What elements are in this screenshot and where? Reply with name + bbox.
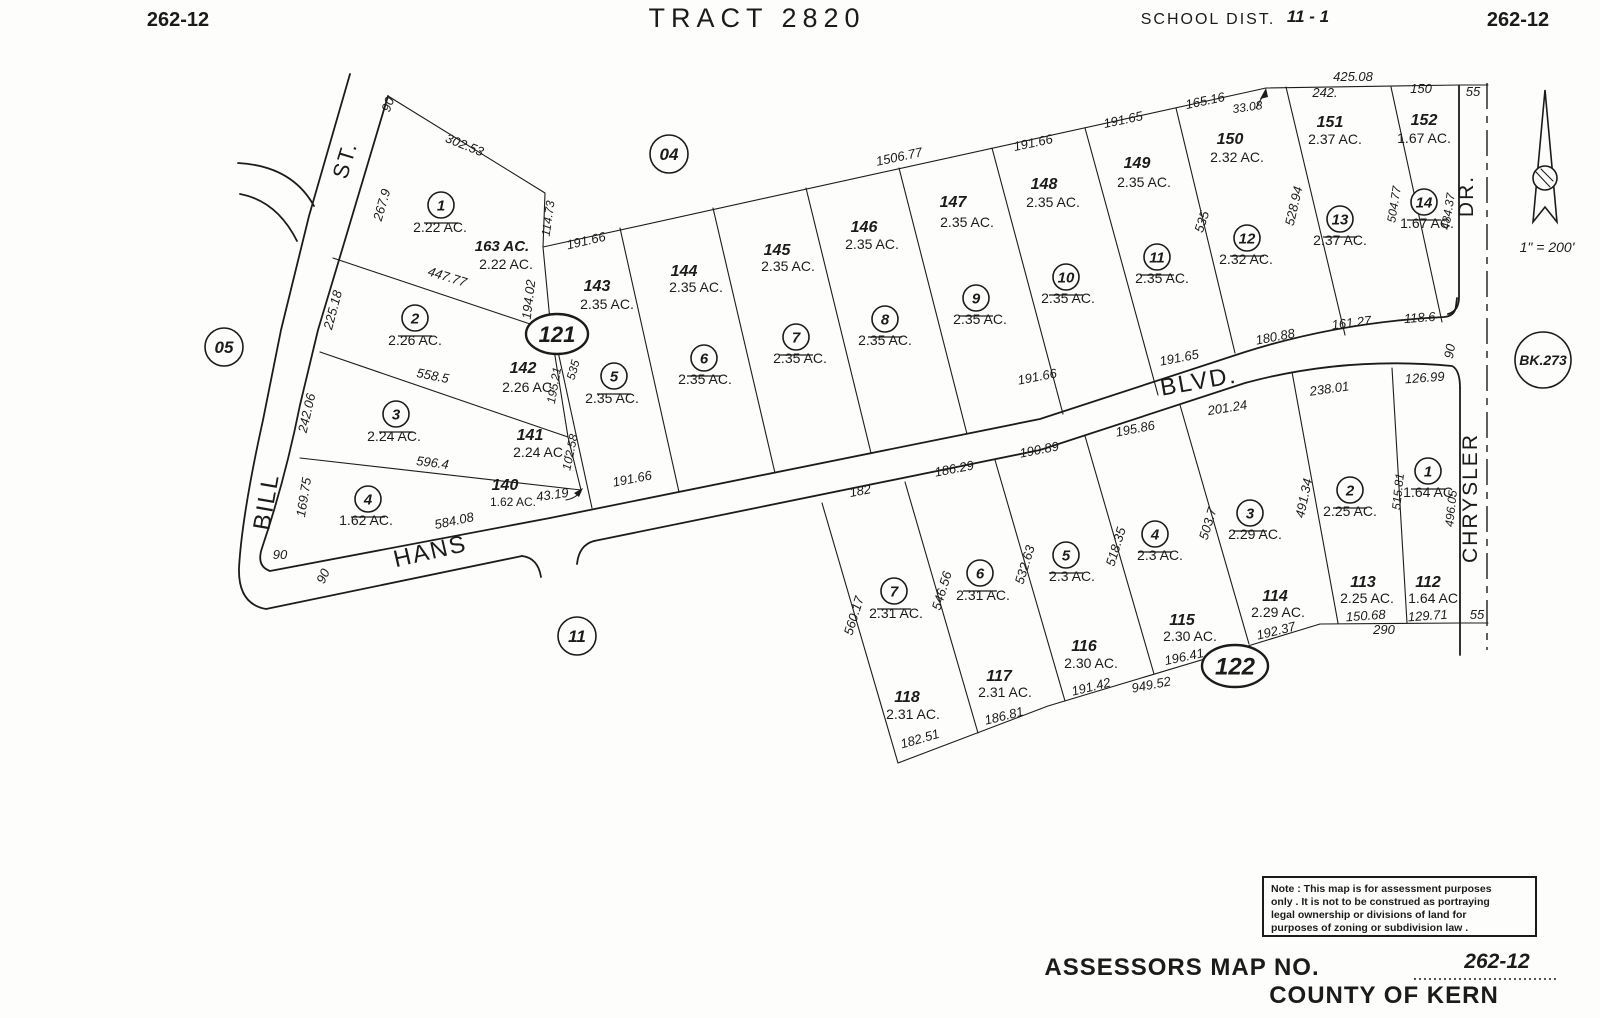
lot-area-label: 1.64 AC. bbox=[1403, 484, 1457, 500]
dimension-label: 90 bbox=[1441, 342, 1458, 360]
lot-number-label: 116 bbox=[1071, 638, 1097, 655]
lot-area-label: 2.35 AC. bbox=[953, 311, 1007, 327]
dimension-label: 186.81 bbox=[983, 704, 1025, 728]
dimension-label: 491.34 bbox=[1292, 477, 1315, 519]
note-line: only . It is not to be construed as port… bbox=[1271, 896, 1490, 908]
page-title: TRACT 2820 bbox=[648, 3, 865, 33]
dimension-label: 535 bbox=[564, 358, 583, 381]
circled-number-label: 6 bbox=[976, 565, 985, 582]
circled-number-label: 4 bbox=[363, 491, 373, 508]
lot-number-label: 114 bbox=[1262, 588, 1288, 605]
lot-area-label: 1.62 AC. bbox=[339, 512, 393, 528]
circled-number-label: 3 bbox=[392, 406, 401, 423]
north-arrow-shape bbox=[1533, 90, 1557, 222]
dimension-label: 596.4 bbox=[415, 453, 449, 472]
sheet-number-left: 262-12 bbox=[147, 9, 209, 31]
street-name-label: BILL bbox=[248, 471, 285, 532]
circled-number-label: 10 bbox=[1058, 269, 1075, 286]
dimension-label: 55 bbox=[1466, 84, 1481, 99]
dimension-label: 201.24 bbox=[1205, 397, 1248, 418]
dimension-label: 191.66 bbox=[565, 229, 608, 253]
lot-area-label: 2.35 AC. bbox=[585, 390, 639, 406]
circled-number-label: 7 bbox=[792, 329, 801, 346]
circled-number-label: 9 bbox=[972, 290, 981, 307]
note-line: Note : This map is for assessment purpos… bbox=[1271, 883, 1492, 895]
dimension-label: 503.7 bbox=[1196, 505, 1220, 541]
street-name-label: DR. bbox=[1455, 175, 1478, 217]
lot-area-label: 2.31 AC. bbox=[956, 587, 1010, 603]
lot-area-label: 2.35 AC. bbox=[858, 332, 912, 348]
dimension-label: 165.16 bbox=[1184, 89, 1227, 112]
lot-area-label: 2.31 AC. bbox=[886, 706, 940, 722]
lot-area-label: 2.24 AC. bbox=[367, 428, 421, 444]
dimension-label: 584.08 bbox=[433, 509, 476, 532]
circled-number-label: 13 bbox=[1332, 211, 1349, 228]
dimension-label: 191.65 bbox=[1158, 346, 1201, 368]
lot-area-label: 2.35 AC. bbox=[773, 350, 827, 366]
north-arrow-circle bbox=[1533, 166, 1557, 190]
dimension-label: 447.77 bbox=[426, 264, 469, 290]
note-line: legal ownership or divisions of land for bbox=[1271, 909, 1466, 921]
lot-number-label: 141 bbox=[517, 427, 544, 444]
circled-number-label: 11 bbox=[1149, 249, 1165, 266]
dimension-label: 535 bbox=[1191, 208, 1212, 234]
circled-number-label: 11 bbox=[568, 627, 586, 646]
dimension-label: 186.29 bbox=[933, 457, 975, 479]
lot-number-label: 148 bbox=[1031, 176, 1058, 193]
lot-area-label: 2.3 AC. bbox=[1049, 568, 1095, 584]
circled-number-label: 04 bbox=[660, 145, 679, 164]
lot-number-label: 144 bbox=[671, 263, 698, 280]
lot-number-label: 150 bbox=[1217, 131, 1244, 148]
lot-number-label: 146 bbox=[851, 219, 878, 236]
dimension-label: 560.17 bbox=[841, 594, 867, 637]
dimension-label: 302.53 bbox=[443, 130, 486, 159]
dimension-label: 55 bbox=[1470, 607, 1485, 622]
dimension-label: 425.08 bbox=[1333, 69, 1374, 84]
lot-area-label: 2.29 AC. bbox=[1228, 526, 1282, 542]
lot-number-label: 145 bbox=[764, 242, 792, 259]
dimension-label: 129.71 bbox=[1407, 607, 1448, 625]
lot-number-label: 118 bbox=[894, 689, 920, 706]
circled-number-label: 121 bbox=[539, 322, 576, 347]
lot-number-label: 143 bbox=[584, 278, 611, 295]
circled-number-label: BK.273 bbox=[1519, 352, 1567, 368]
assessors-map-number: 262-12 bbox=[1463, 950, 1530, 973]
lot-number-label: 117 bbox=[986, 668, 1013, 685]
lot-area-label: 1.62 AC. bbox=[490, 495, 536, 509]
dimension-label: 242. bbox=[1311, 85, 1337, 100]
scale-label: 1" = 200' bbox=[1520, 239, 1576, 255]
dimension-label: 182 bbox=[848, 481, 873, 500]
lot-area-label: 2.35 AC. bbox=[1026, 194, 1080, 210]
circled-number-label: 2 bbox=[410, 310, 420, 327]
circled-number-label: 3 bbox=[1246, 505, 1255, 522]
parcel-map-canvas: 1" = 200' BILLST.HANSBLVD.DR.CHRYSLER903… bbox=[0, 0, 1600, 1018]
dimension-label: 90 bbox=[378, 94, 397, 113]
dimension-label: 90 bbox=[273, 547, 288, 562]
dimension-label: 126.99 bbox=[1404, 369, 1445, 387]
lot-area-label: 2.35 AC. bbox=[1041, 290, 1095, 306]
circled-number-label: 1 bbox=[1424, 463, 1432, 480]
assessors-map-label: ASSESSORS MAP NO. bbox=[1044, 954, 1319, 981]
dimension-label: 191.66 bbox=[1016, 365, 1059, 387]
county-label: COUNTY OF KERN bbox=[1269, 982, 1499, 1009]
circled-number-label: 7 bbox=[890, 583, 899, 600]
dimension-label: 558.5 bbox=[415, 365, 451, 386]
dimension-label: 191.66 bbox=[611, 467, 654, 489]
dimension-label: 528.94 bbox=[1282, 185, 1306, 227]
lot-area-label: 2.25 AC. bbox=[1323, 503, 1377, 519]
dimension-label: 161.27 bbox=[1331, 313, 1373, 333]
circled-number-label: 2 bbox=[1345, 482, 1355, 499]
lot-area-label: 2.29 AC. bbox=[1251, 604, 1305, 620]
street-name-label: HANS bbox=[391, 530, 470, 573]
north-arrow: 1" = 200' bbox=[1520, 90, 1576, 255]
lot-area-label: 2.35 AC. bbox=[669, 279, 723, 295]
lot-number-label: 147 bbox=[940, 194, 968, 211]
lot-area-label: 2.22 AC. bbox=[479, 256, 533, 272]
circled-number-label: 12 bbox=[1239, 230, 1256, 247]
dimension-label: 180.88 bbox=[1254, 325, 1297, 347]
lot-area-label: 2.31 AC. bbox=[869, 605, 923, 621]
lot-number-label: 151 bbox=[1317, 114, 1344, 131]
lot-area-label: 2.22 AC. bbox=[413, 219, 467, 235]
school-district-label: SCHOOL DIST. bbox=[1141, 11, 1276, 28]
dimension-label: 194.02 bbox=[519, 278, 539, 320]
dimension-label: 191.66 bbox=[1012, 131, 1055, 154]
circled-number-label: 14 bbox=[1416, 194, 1433, 211]
dimension-label: 150 bbox=[1410, 81, 1432, 96]
lot-area-label: 2.3 AC. bbox=[1137, 547, 1183, 563]
map-header: 262-12 TRACT 2820 SCHOOL DIST. 11 - 1 26… bbox=[147, 3, 1549, 33]
dimension-label: 238.01 bbox=[1308, 378, 1350, 399]
street-name-label: BLVD. bbox=[1158, 362, 1239, 402]
dimension-label: 532.63 bbox=[1012, 543, 1038, 586]
lot-area-label: 2.30 AC. bbox=[1064, 655, 1118, 671]
dimension-label: 33.08 bbox=[1232, 98, 1264, 116]
dimension-label: 90 bbox=[313, 566, 333, 586]
circled-number-label: 6 bbox=[700, 350, 709, 367]
dimension-label: 191.65 bbox=[1102, 108, 1145, 131]
map-footer: Note : This map is for assessment purpos… bbox=[1044, 877, 1556, 1009]
lot-area-label: 1.64 AC. bbox=[1408, 590, 1462, 606]
dimension-label: 191.42 bbox=[1070, 674, 1113, 698]
lot-number-label: 112 bbox=[1415, 574, 1441, 591]
dimension-label: 518.35 bbox=[1103, 525, 1129, 568]
lot-area-label: 2.25 AC. bbox=[1340, 590, 1394, 606]
road-network bbox=[238, 74, 1487, 655]
circled-number-label: 8 bbox=[881, 311, 890, 328]
assessor-map-page: 1" = 200' BILLST.HANSBLVD.DR.CHRYSLER903… bbox=[0, 0, 1600, 1018]
circled-number-label: 05 bbox=[215, 338, 234, 357]
lot-number-label: 163 AC. bbox=[475, 238, 529, 255]
lot-area-label: 1.67 AC. bbox=[1397, 130, 1451, 146]
lot-number-label: 142 bbox=[510, 360, 537, 377]
lot-area-label: 2.37 AC. bbox=[1313, 232, 1367, 248]
circled-number-label: 5 bbox=[1062, 547, 1071, 564]
dimension-label: 242.06 bbox=[295, 391, 319, 435]
south-stub-curb-returns bbox=[522, 541, 594, 577]
dimension-label: 118.6 bbox=[1403, 309, 1436, 326]
lot-area-label: 2.35 AC. bbox=[940, 214, 994, 230]
street-name-label: ST. bbox=[327, 138, 362, 181]
lot-area-label: 2.35 AC. bbox=[678, 371, 732, 387]
sheet-number-right: 262-12 bbox=[1487, 9, 1549, 31]
dimension-label: 190.89 bbox=[1018, 438, 1060, 460]
circled-number-label: 122 bbox=[1215, 654, 1256, 681]
parcel-boundaries bbox=[300, 85, 1488, 763]
circled-number-label: 5 bbox=[610, 368, 619, 385]
dimension-label: 114.73 bbox=[539, 199, 558, 237]
dimension-label: 192.37 bbox=[1255, 618, 1298, 642]
lot-area-label: 2.32 AC. bbox=[1210, 149, 1264, 165]
lot-area-label: 2.26 AC. bbox=[388, 332, 442, 348]
lot-number-label: 115 bbox=[1169, 612, 1196, 629]
note-line: purposes of zoning or subdivision law . bbox=[1271, 922, 1468, 934]
lot-area-label: 2.31 AC. bbox=[978, 684, 1032, 700]
side-street-curb-returns bbox=[238, 163, 314, 241]
lot-number-label: 113 bbox=[1350, 574, 1376, 591]
lot-area-label: 2.35 AC. bbox=[845, 236, 899, 252]
dimension-label: 267.9 bbox=[370, 187, 394, 223]
circled-number-label: 1 bbox=[437, 197, 445, 214]
dimension-label: 169.75 bbox=[293, 476, 314, 518]
lot-area-label: 2.35 AC. bbox=[580, 296, 634, 312]
lot-area-label: 2.26 AC. bbox=[502, 379, 556, 395]
street-name-label: CHRYSLER bbox=[1459, 433, 1482, 563]
lot-area-label: 2.37 AC. bbox=[1308, 131, 1362, 147]
lot-area-label: 2.35 AC. bbox=[761, 258, 815, 274]
lot-area-label: 2.24 AC. bbox=[513, 444, 567, 460]
lot-area-label: 2.35 AC. bbox=[1117, 174, 1171, 190]
lot-area-label: 1.67 AC. bbox=[1400, 215, 1454, 231]
school-district-value: 11 - 1 bbox=[1287, 7, 1329, 26]
lot-area-label: 2.30 AC. bbox=[1163, 628, 1217, 644]
lot-number-label: 149 bbox=[1124, 155, 1151, 172]
dimension-label: 949.52 bbox=[1130, 673, 1173, 695]
dimension-label: 182.51 bbox=[899, 726, 941, 751]
lot-area-label: 2.32 AC. bbox=[1219, 251, 1273, 267]
dimension-label: 43.19 bbox=[535, 485, 569, 504]
lot-area-label: 2.35 AC. bbox=[1135, 270, 1189, 286]
circled-number-label: 4 bbox=[1150, 526, 1160, 543]
dimension-label: 290 bbox=[1372, 622, 1395, 637]
lot-number-label: 152 bbox=[1411, 112, 1438, 129]
lot-number-label: 140 bbox=[492, 477, 519, 494]
dimension-label: 195.86 bbox=[1114, 417, 1157, 439]
